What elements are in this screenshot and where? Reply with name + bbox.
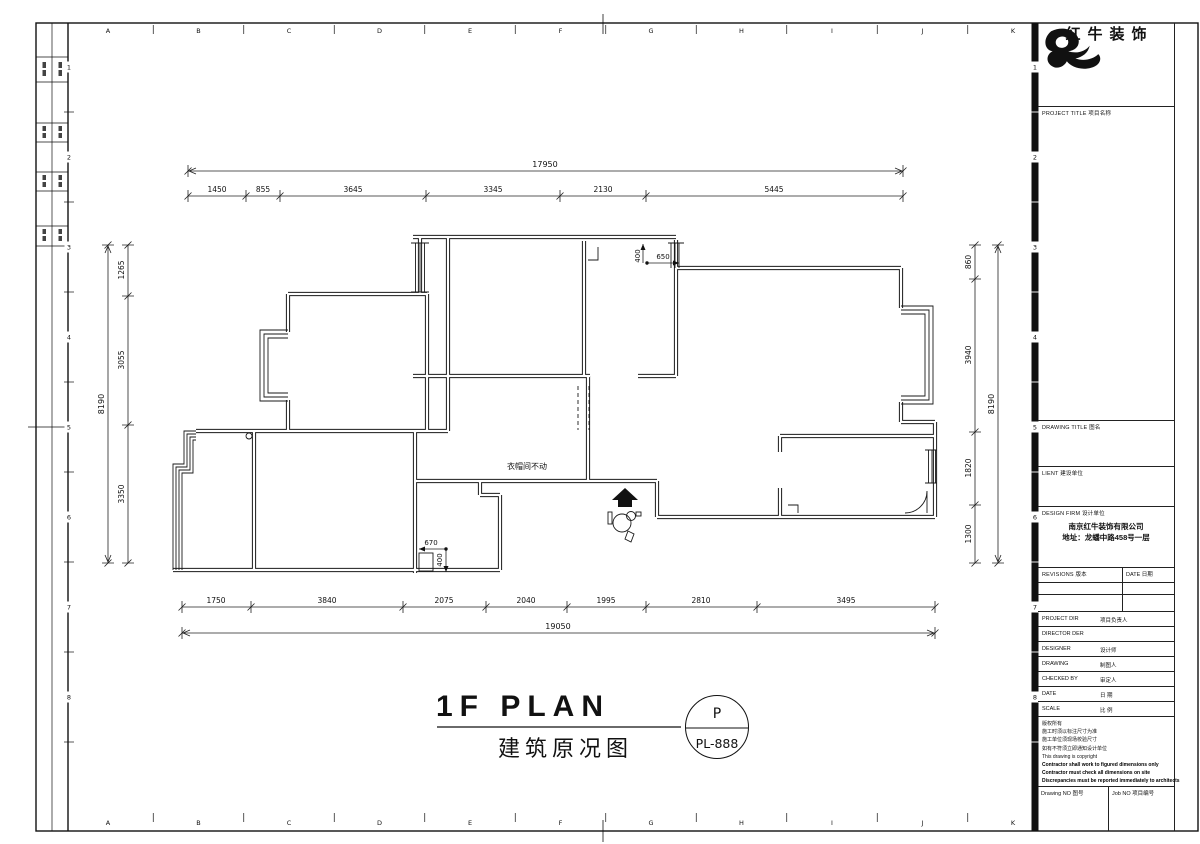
grid-ref-label: 3 [67,244,71,252]
grid-ref-label: 4 [1033,334,1037,342]
approval-row: DIRECTOR DER [1038,627,1174,642]
row-label-zh: 审定人 [1100,676,1117,684]
grid-ref-label: A [106,27,111,35]
approval-row: DATE日 期 [1038,687,1174,702]
grid-ref-label: D [377,819,382,827]
dim-bottom-total: 19050 [545,622,570,631]
grid-ref-label: I [831,819,833,827]
dim-label: 670 [424,539,437,547]
grid-ref-label: K [1011,819,1016,827]
plan-title-zh: 建筑原况图 [498,731,633,763]
dim-label: 1820 [964,458,973,477]
grid-ref-label: I [831,27,833,35]
dim-label: 1750 [206,596,225,605]
grid-ref-label: 4 [67,334,71,342]
approval-row: DRAWING制图人 [1038,657,1174,672]
row-label-zh: 项目负责人 [1100,616,1128,624]
grid-ref-label: J [921,819,924,827]
redniu-logo-icon [1038,27,1110,77]
dim-label: 2040 [516,596,535,605]
grid-ref-label: H [739,819,744,827]
grid-ref-label: K [1011,27,1016,35]
revisions-label: REVISIONS 版本 [1038,568,1087,578]
approval-rows: PROJECT DIR项目负责人 DIRECTOR DER DESIGNER设计… [1038,612,1174,717]
copyright-line: Discrepancies must be reported immediate… [1042,777,1174,785]
row-label-en: DATE [1042,691,1056,697]
design-firm-label: DESIGN FIRM 设计单位 [1038,507,1174,517]
dim-label: 1995 [596,596,615,605]
grid-ref-label: 8 [1033,694,1037,702]
dim-label: 3345 [483,185,502,194]
dim-label: 2810 [691,596,710,605]
dim-label: 860 [964,255,973,270]
dim-label: 3350 [117,484,126,503]
grid-ref-label: E [468,27,472,35]
row-label-en: CHECKED BY [1042,676,1078,682]
dim-label: 3840 [317,596,336,605]
copyright-line: Contractor must check all dimensions on … [1042,769,1174,777]
row-label-zh: 设计师 [1100,646,1117,654]
approval-row: DESIGNER设计师 [1038,642,1174,657]
design-firm-name: 南京红牛装饰有限公司 [1038,521,1174,532]
grid-ref-label: 3 [1033,244,1037,252]
drawing-no-label: Drawing NO 图号 [1041,789,1083,797]
dim-label: 5445 [764,185,783,194]
copyright-line: 施工时须以标注尺寸为准 [1042,728,1174,736]
copyright-line: 如有不符须立即通知设计单位 [1042,745,1174,753]
grid-ref-label: E [468,819,472,827]
title-block: 红牛装饰 PROJECT TITLE 项目名称 DRAWING TITLE 图名… [1038,23,1175,831]
row-label-zh: 制图人 [1100,661,1117,669]
dimension-labels: 17950 1450 855 3645 3345 2130 5445 1750 … [97,160,996,631]
drawing-title-section: DRAWING TITLE 图名 [1038,421,1174,467]
row-label-en: PROJECT DIR [1042,616,1079,622]
grid-ref-label: G [648,27,653,35]
grid-ref-label: D [377,27,382,35]
project-title-section: PROJECT TITLE 项目名称 [1038,107,1174,421]
grid-ref-label: G [648,819,653,827]
row-label-zh: 日 期 [1100,691,1113,699]
date-column-label: DATE 日期 [1126,570,1153,578]
grid-ref-label: C [287,27,292,35]
copyright-line: 施工单位须现场校验尺寸 [1042,736,1174,744]
grid-ref-label: 2 [67,154,71,162]
row-label-zh: 比 例 [1100,706,1113,714]
row-label-en: DRAWING [1042,661,1068,667]
row-label-en: DIRECTOR DER [1042,631,1084,637]
grid-ref-label: B [196,819,200,827]
dim-label: 2130 [593,185,612,194]
stamp-letter: P [713,706,721,722]
stamp-number: PL-888 [696,736,739,751]
grid-ref-label: 7 [1033,604,1037,612]
drawing-number-section: Drawing NO 图号 Job NO 项目编号 [1038,787,1174,831]
dim-label: 1265 [117,260,126,279]
grid-ref-label: J [921,27,924,35]
dim-label: 3645 [343,185,362,194]
approval-row: CHECKED BY审定人 [1038,672,1174,687]
grid-ref-label: F [559,819,563,827]
design-firm-address: 地址：龙蟠中路458号一层 [1038,532,1174,543]
grid-ref-label: 5 [67,424,71,432]
client-section: LIENT 建设单位 [1038,467,1174,507]
dim-label: 2075 [434,596,453,605]
dim-label: 855 [256,185,271,194]
dim-label: 650 [656,253,669,261]
revision-empty-row [1038,583,1174,595]
grid-ref-label: 1 [67,64,71,72]
approval-row: SCALE比 例 [1038,702,1174,717]
copyright-section: 版权所有 施工时须以标注尺寸为准 施工单位须现场校验尺寸 如有不符须立即通知设计… [1038,717,1174,787]
row-label-en: SCALE [1042,706,1060,712]
copyright-line: This drawing is copyright [1042,753,1174,761]
row-label-en: DESIGNER [1042,646,1071,652]
walls [173,237,935,573]
copyright-line: 版权所有 [1042,720,1174,728]
dim-label: 400 [436,553,444,566]
dim-top-total: 17950 [532,160,557,169]
revisions-section: REVISIONS 版本 DATE 日期 [1038,568,1174,612]
dim-label: 3055 [117,350,126,369]
job-no-label: Job NO 项目编号 [1112,789,1154,797]
project-title-label: PROJECT TITLE 项目名称 [1038,107,1174,117]
dim-right-total: 8190 [987,394,996,414]
grid-ref-label: B [196,27,200,35]
grid-ref-label: F [559,27,563,35]
logo-section: 红牛装饰 [1038,23,1174,107]
drawing-title-label: DRAWING TITLE 图名 [1038,421,1174,431]
sheet-frame [28,14,1198,842]
dim-label: 1450 [207,185,226,194]
dim-label: 1300 [964,524,973,543]
grid-ref-label: C [287,819,292,827]
dim-label: 400 [634,249,642,262]
dim-left-total: 8190 [97,394,106,414]
plan-title-en: 1F PLAN [436,690,610,724]
grid-ref-label: A [106,819,111,827]
dim-label: 3495 [836,596,855,605]
dimension-terminators [419,244,679,572]
approval-row: PROJECT DIR项目负责人 [1038,612,1174,627]
grid-ref-label: 8 [67,694,71,702]
drawing-sheet: 17950 1450 855 3645 3345 2130 5445 1750 … [0,0,1200,844]
grid-ref-label: 2 [1033,154,1037,162]
grid-ref-label: 5 [1033,424,1037,432]
design-firm-section: DESIGN FIRM 设计单位 南京红牛装饰有限公司 地址：龙蟠中路458号一… [1038,507,1174,568]
grid-ref-label: 6 [1033,514,1037,522]
grid-ref-label: 1 [1033,64,1037,72]
dim-label: 3940 [964,345,973,364]
copyright-line: Contractor shall work to figured dimensi… [1042,761,1174,769]
grid-ref-label: 7 [67,604,71,612]
client-label: LIENT 建设单位 [1038,467,1174,477]
drawing-number-divider [1108,787,1109,831]
closet-note: 衣帽间不动 [507,461,547,471]
grid-ref-label: 6 [67,514,71,522]
grid-ref-label: H [739,27,744,35]
entry-arrow-icon [612,488,638,507]
person-at-table-icon [608,512,641,543]
